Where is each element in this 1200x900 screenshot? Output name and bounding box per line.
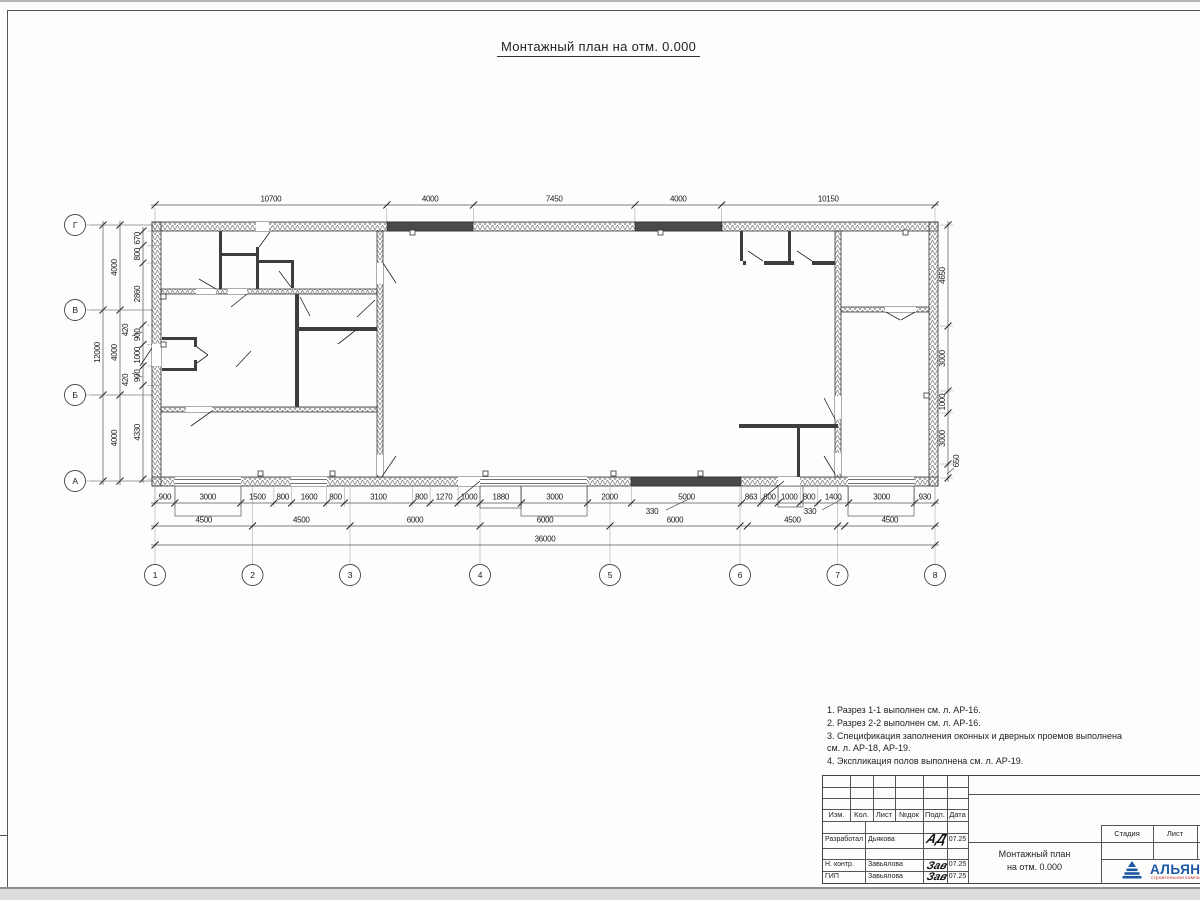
name-developer: Дьякова [868, 836, 895, 843]
svg-text:4500: 4500 [195, 516, 212, 525]
note-line: 2. Разрез 2-2 выполнен см. л. АР-16. [827, 717, 1122, 730]
svg-text:5: 5 [608, 570, 613, 580]
title-block: Изм. Кол. Лист №док Подп. Дата Разработа… [822, 775, 1200, 884]
svg-text:4330: 4330 [133, 423, 142, 440]
stage-header: Стадия [1101, 829, 1153, 838]
svg-text:Б: Б [72, 390, 78, 400]
svg-text:3000: 3000 [938, 429, 947, 446]
svg-text:4000: 4000 [670, 195, 687, 204]
svg-text:1270: 1270 [436, 493, 453, 502]
signature-developer: АД [925, 831, 949, 846]
svg-text:1000: 1000 [133, 346, 142, 363]
name-checker: Завьялова [868, 861, 903, 868]
svg-text:36000: 36000 [535, 535, 557, 544]
role-checker: Н. контр. [825, 861, 854, 868]
pyramid-logo-icon [1119, 861, 1145, 881]
svg-text:10700: 10700 [261, 195, 283, 204]
date-col-header: Дата [947, 810, 968, 819]
svg-text:3100: 3100 [370, 493, 387, 502]
svg-text:6000: 6000 [407, 516, 424, 525]
svg-text:4000: 4000 [110, 429, 119, 446]
svg-text:420: 420 [121, 323, 130, 336]
svg-text:800: 800 [803, 493, 816, 502]
signature-gip: Зав [925, 871, 949, 883]
svg-text:4000: 4000 [110, 343, 119, 360]
svg-text:650: 650 [952, 454, 961, 467]
note-line: см. л. АР-18, АР-19. [827, 742, 1122, 755]
svg-text:1500: 1500 [249, 493, 266, 502]
note-line: 1. Разрез 1-1 выполнен см. л. АР-16. [827, 704, 1122, 717]
svg-text:900: 900 [133, 328, 142, 341]
date-checker: 07.25 [947, 861, 968, 868]
svg-text:2: 2 [250, 570, 255, 580]
svg-text:4650: 4650 [938, 266, 947, 283]
drawing-sheet: Монтажный план на отм. 0.000 10700400074… [0, 0, 1200, 900]
name-gip: Завьялова [868, 873, 903, 880]
svg-text:3: 3 [348, 570, 353, 580]
date-developer: 07.25 [947, 836, 968, 843]
svg-text:2000: 2000 [601, 493, 618, 502]
role-gip: ГИП [825, 873, 839, 880]
docnum-col-header: №док [895, 810, 923, 819]
svg-text:10150: 10150 [818, 195, 840, 204]
svg-text:930: 930 [919, 493, 932, 502]
note-line: 4. Экспликация полов выполнена см. л. АР… [827, 755, 1122, 768]
signature-col-header: Подп. [923, 810, 947, 819]
svg-text:6000: 6000 [537, 516, 554, 525]
svg-text:800: 800 [133, 247, 142, 260]
svg-text:12000: 12000 [93, 341, 102, 363]
sheet-col-header: Лист [873, 810, 895, 819]
sheet-header: Лист [1153, 829, 1197, 838]
svg-text:4: 4 [478, 570, 483, 580]
svg-text:4500: 4500 [882, 516, 899, 525]
count-col-header: Кол. [850, 810, 873, 819]
svg-text:6: 6 [738, 570, 743, 580]
svg-text:1000: 1000 [938, 393, 947, 410]
svg-text:4000: 4000 [110, 258, 119, 275]
svg-text:4500: 4500 [784, 516, 801, 525]
date-gip: 07.25 [947, 873, 968, 880]
svg-text:8: 8 [933, 570, 938, 580]
svg-text:3000: 3000 [873, 493, 890, 502]
org-logo [1119, 861, 1145, 883]
plan-generated-geometry: 1070040007450400010150900300015008001600… [65, 195, 962, 586]
svg-text:670: 670 [133, 231, 142, 244]
note-line: 3. Спецификация заполнения оконных и две… [827, 730, 1122, 743]
svg-text:4500: 4500 [293, 516, 310, 525]
svg-text:800: 800 [415, 493, 428, 502]
svg-text:6000: 6000 [667, 516, 684, 525]
revision-col-header: Изм. [823, 810, 850, 819]
svg-text:В: В [72, 305, 78, 315]
svg-text:1000: 1000 [461, 493, 478, 502]
org-name: АЛЬЯНС [1150, 862, 1200, 877]
svg-text:1000: 1000 [781, 493, 798, 502]
svg-text:330: 330 [804, 507, 817, 516]
role-developer: Разработал [825, 836, 863, 843]
org-tagline: строительная компания [1151, 876, 1200, 881]
doc-title-line1: Монтажный план [968, 848, 1101, 861]
svg-text:7450: 7450 [546, 195, 563, 204]
svg-text:863: 863 [745, 493, 758, 502]
svg-text:7: 7 [835, 570, 840, 580]
doc-title-line2: на отм. 0.000 [968, 861, 1101, 874]
svg-text:1600: 1600 [301, 493, 318, 502]
svg-text:3000: 3000 [199, 493, 216, 502]
svg-text:3000: 3000 [546, 493, 563, 502]
svg-text:4000: 4000 [422, 195, 439, 204]
svg-text:800: 800 [329, 493, 342, 502]
svg-text:800: 800 [276, 493, 289, 502]
svg-text:2860: 2860 [133, 285, 142, 302]
doc-title: Монтажный план на отм. 0.000 [968, 848, 1101, 874]
svg-text:3000: 3000 [938, 349, 947, 366]
svg-text:330: 330 [646, 507, 659, 516]
svg-text:А: А [72, 476, 78, 486]
svg-text:Г: Г [73, 220, 78, 230]
svg-text:420: 420 [121, 373, 130, 386]
notes-block: 1. Разрез 1-1 выполнен см. л. АР-16. 2. … [827, 704, 1122, 768]
svg-text:1: 1 [153, 570, 158, 580]
svg-text:1880: 1880 [492, 493, 509, 502]
svg-text:900: 900 [159, 493, 172, 502]
